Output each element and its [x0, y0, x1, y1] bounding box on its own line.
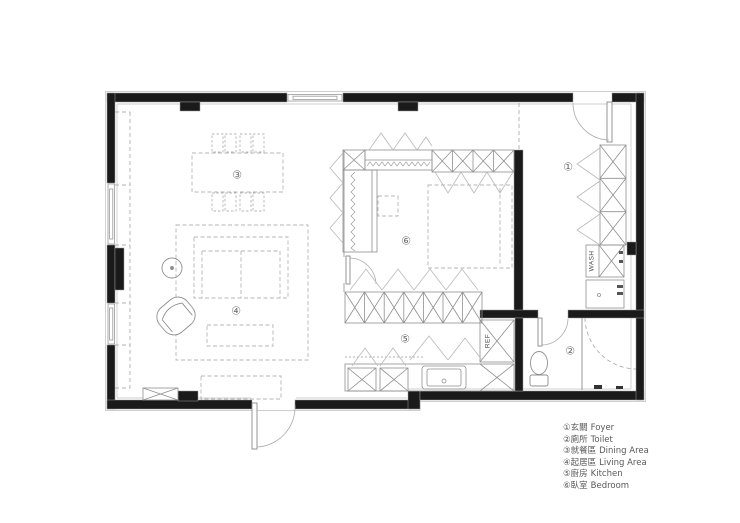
legend-item: ④起居區Living Area [563, 458, 649, 470]
threshold-mark [616, 386, 623, 389]
toilet-west-wall [515, 318, 523, 391]
bed [428, 185, 512, 268]
dashed-reference-lines [115, 103, 636, 388]
wc-toilet [530, 352, 548, 387]
floor-plan-page: ① ② ③ ④ ⑤ ⑥ WASH REF ①玄關Foyer ②廁所Toilet … [0, 0, 740, 523]
room-marker-dining-area: ③ [232, 170, 242, 181]
foyer-sink-counter [586, 280, 624, 308]
bottom-left-cabinet [143, 388, 178, 400]
bedroom-casework [343, 150, 514, 323]
lounge-chair [152, 292, 200, 340]
bedroom-foyer-wall [514, 150, 523, 312]
shower-swing-arc [585, 318, 636, 369]
floor-drain [594, 385, 602, 389]
kitchen-sink [422, 366, 466, 389]
terrace-door [252, 403, 295, 449]
room-marker-bedroom: ⑥ [401, 236, 411, 247]
room-marker-kitchen: ⑤ [400, 334, 410, 345]
room-marker-foyer: ① [563, 162, 573, 173]
toilet-north-wall-left [480, 310, 538, 318]
chevrons-bedroom-shelf [369, 133, 432, 150]
chevrons-bedroom-top-row [435, 172, 513, 193]
legend-item: ③就餐區Dining Area [563, 446, 649, 458]
right-wall-pier [627, 242, 636, 255]
bedroom-door [346, 256, 376, 284]
fridge-label: REF [485, 334, 492, 348]
chevrons-bedroom-bottom-row [350, 269, 478, 290]
legend: ①玄關Foyer ②廁所Toilet ③就餐區Dining Area ④起居區L… [563, 423, 649, 493]
top-wall-pier-left [180, 102, 200, 111]
legend-item: ⑤廚房Kitchen [563, 469, 649, 481]
hanger-rod-vertical [351, 172, 355, 251]
tv-bench [201, 376, 281, 399]
kitchen-tall-cabinet [480, 364, 514, 391]
entry-door [573, 102, 612, 142]
hanger-rod-horizontal [367, 162, 430, 166]
cabinet-chevrons [330, 133, 600, 366]
left-wall-pier [115, 248, 124, 290]
room-marker-living-area: ④ [231, 306, 241, 317]
chevrons-foyer-cabinet [577, 148, 600, 245]
toilet-north-wall-right [568, 310, 644, 318]
living-furniture [176, 225, 308, 399]
nightstand [378, 196, 398, 216]
foyer-casework [586, 145, 626, 308]
coffee-table [207, 325, 273, 346]
windows [108, 95, 342, 345]
washer-label: WASH [589, 251, 596, 272]
legend-item: ②廁所Toilet [563, 435, 649, 447]
sofa [194, 237, 288, 298]
floor-lamp [162, 258, 182, 278]
toilet-door [538, 318, 568, 346]
bottom-wall-step [408, 391, 420, 409]
bedroom-furniture [378, 185, 512, 268]
chevrons-wardrobe-west [330, 153, 343, 243]
top-wall-pier-right [398, 102, 418, 111]
legend-item: ⑥臥室Bedroom [563, 481, 649, 493]
toilet-fixtures [530, 318, 623, 390]
legend-item: ①玄關Foyer [563, 423, 649, 435]
chevrons-kitchen-upper [410, 336, 482, 360]
room-marker-toilet: ② [565, 346, 575, 357]
bottom-wall-pier [178, 391, 198, 401]
